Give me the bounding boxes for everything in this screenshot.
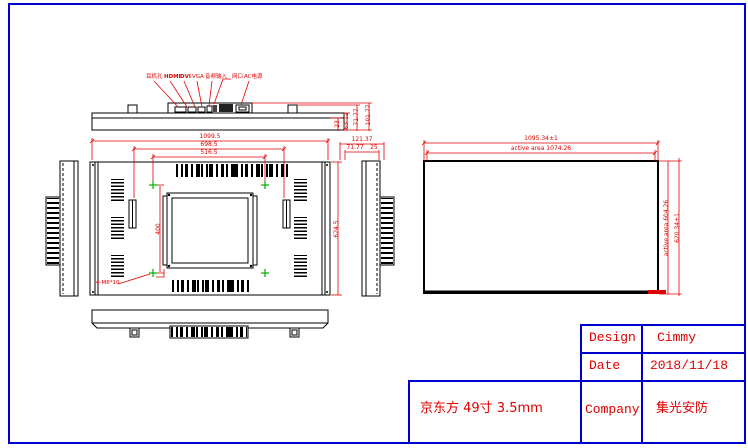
date-label: Date [589,359,620,372]
connector-label-vga: VGA [192,75,204,81]
vent-grille [294,217,307,239]
panel-back-view [424,161,666,294]
dim-depth-inner: 71.77 [346,145,363,151]
vent-grille [111,179,124,201]
connector-label-lan: 网口 [232,75,243,81]
vent-grille [111,217,124,239]
dim-vesa-height: 400 [156,223,162,234]
left-side-connector-block [47,198,59,264]
right-side-connector-block [381,198,393,264]
title-block-line [408,380,410,442]
vent-grille [111,255,124,277]
title-block-line [408,380,744,382]
title-block-line [641,324,643,442]
company-value: 集光安防 [656,402,708,415]
vent-grille [294,179,307,201]
connector-label-hdmi: HDMI [164,75,181,81]
dim-panel-active-height: active area 604.26 [664,200,670,256]
title-block-line [580,324,582,442]
dim-bracket-spacing: 698.5 [200,142,217,148]
dim-thickness-1: 23 [335,120,341,128]
connector-label-headphone: 耳机孔 [146,75,163,81]
dim-panel-active-width: active area 1074.26 [511,146,571,152]
panel-spec: 京东方 49寸 3.5mm [420,402,543,415]
dim-depth-outer: 121.37 [352,137,373,143]
top-vent-grille [176,164,288,177]
dim-overall-height: 624.5 [334,220,340,237]
date-value: 2018/11/18 [650,359,728,372]
dim-thickness-4: 101.77 [366,105,372,126]
design-value: Cimmy [657,331,696,344]
dim-thickness-3: 71.77 [354,108,360,125]
dim-panel-height: 620.34±1 [675,213,681,243]
bottom-vent-grille [172,280,250,292]
dim-panel-width: 1095.34±1 [524,136,558,142]
drawing-sheet: 耳机孔 HDMI DVI VGA 音频输入 网口 AC电源 23 63.12 7… [0,0,748,448]
company-label: Company [585,403,640,416]
vent-grille [294,255,307,277]
connector-label-audio-in: 音频输入 [205,75,227,81]
top-view [92,103,344,130]
mount-hole-callout: 4-M6*10 [96,281,119,287]
connector-label-dvi: DVI [180,75,191,81]
design-label: Design [589,331,636,344]
dim-vesa-width: 516.5 [200,150,217,156]
title-block-line [580,324,744,326]
bottom-view-grille [171,327,247,337]
connector-label-ac-power: AC电源 [244,75,263,81]
title-block-line [580,352,744,354]
dim-overall-width: 1099.5 [200,134,221,140]
dim-depth-small: 25 [370,145,378,151]
dim-thickness-2: 63.12 [344,112,350,129]
